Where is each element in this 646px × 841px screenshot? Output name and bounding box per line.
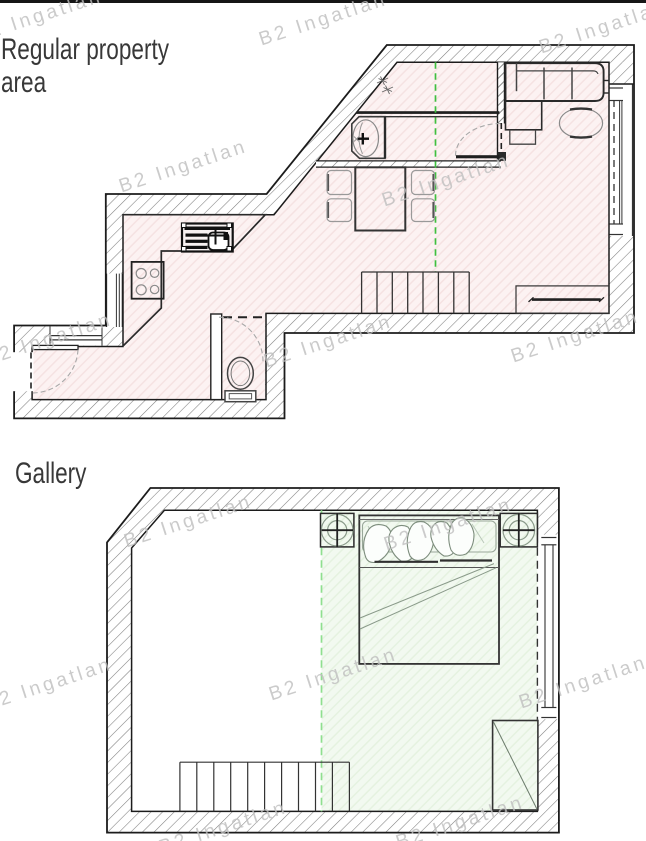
svg-text:B2 Ingatlan: B2 Ingatlan (0, 653, 115, 715)
svg-text:B2 Ingatlan: B2 Ingatlan (116, 135, 250, 197)
svg-text:Regular property: Regular property (1, 32, 170, 66)
svg-text:area: area (1, 65, 46, 99)
svg-text:B2 Ingatlan: B2 Ingatlan (256, 0, 390, 50)
svg-text:Gallery: Gallery (15, 456, 87, 490)
